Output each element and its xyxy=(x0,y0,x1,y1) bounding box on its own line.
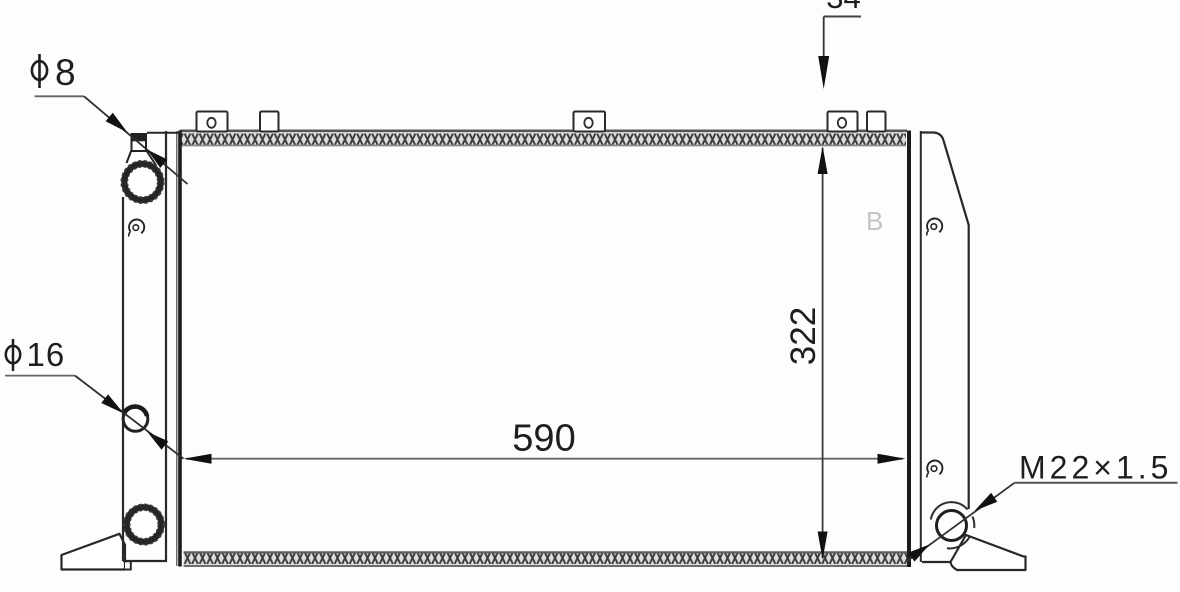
svg-text:322: 322 xyxy=(784,307,823,365)
svg-text:8: 8 xyxy=(55,52,76,93)
svg-text:16: 16 xyxy=(27,336,66,373)
svg-text:B: B xyxy=(866,206,883,236)
svg-text:590: 590 xyxy=(512,418,575,460)
svg-text:M22×1.5: M22×1.5 xyxy=(1019,450,1172,486)
svg-text:34: 34 xyxy=(826,0,860,15)
